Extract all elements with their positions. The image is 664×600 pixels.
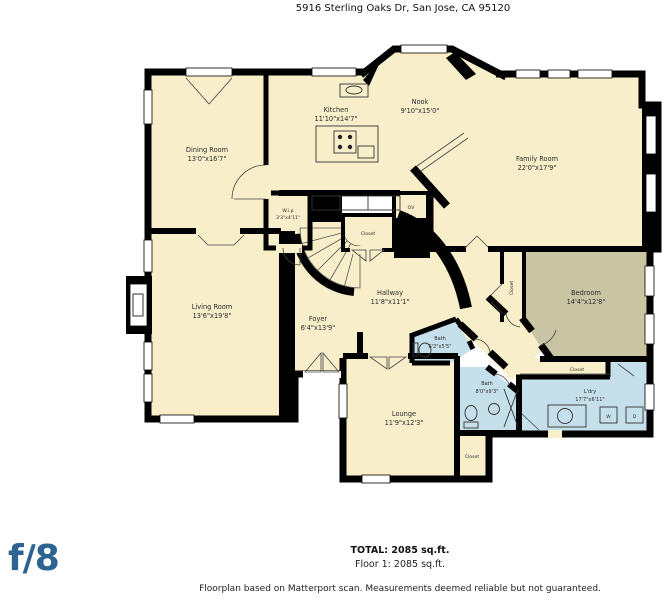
washer-label: W (606, 414, 611, 420)
pantry-dims: 3'3"x4'11" (276, 215, 300, 221)
disclaimer-text: Floorplan based on Matterport scan. Meas… (199, 584, 601, 594)
bath-small-label: Bath (434, 336, 446, 342)
total-area: TOTAL: 2085 sq.ft. (351, 545, 450, 556)
kitchen-dims: 11'10"x14'7" (315, 115, 358, 123)
floor-area: Floor 1: 2085 sq.ft. (355, 559, 445, 570)
lounge-dims: 11'9"x12'3" (385, 419, 424, 427)
bath-dims: 8'0"x9'3" (475, 389, 498, 395)
bath-label: Bath (481, 381, 493, 387)
foyer-label: Foyer (309, 315, 328, 323)
family-room-dims: 22'0"x17'9" (518, 164, 557, 172)
nook-dims: 9'10"x15'0" (401, 107, 440, 115)
dining-room-label: Dining Room (186, 146, 228, 154)
family-room-label: Family Room (516, 155, 558, 163)
laundry-dims: 17'7"x6'11" (575, 397, 604, 403)
foyer-dims: 6'4"x13'9" (301, 324, 336, 332)
closet-stairs-label: Closet (361, 231, 376, 237)
living-room-label: Living Room (192, 303, 232, 311)
bedroom-label: Bedroom (571, 289, 601, 297)
laundry-label: L'dry (584, 389, 596, 395)
dining-room-dims: 13'0"x16'7" (188, 155, 227, 163)
kitchen-label: Kitchen (324, 106, 349, 114)
living-room-dims: 13'6"x19'8" (193, 312, 232, 320)
f8-logo: f/8 (8, 538, 59, 579)
closet-lounge-label: Closet (465, 454, 480, 460)
closet-bedroom-bottom-label: Closet (570, 367, 585, 373)
floorplan-drawing: Kitchen 11'10"x14'7" Nook 9'10"x15'0" Di… (0, 0, 664, 600)
pantry-label: W.i.p (282, 208, 293, 214)
nook-label: Nook (412, 98, 429, 106)
closet-bedroom-side-label: Closet (509, 281, 515, 296)
lounge-label: Lounge (392, 410, 416, 418)
dryer-label: D (633, 414, 637, 420)
hallway-dims: 11'8"x11'1" (371, 298, 410, 306)
kitchen-island (316, 126, 378, 162)
oven-label: OV (408, 205, 416, 211)
hallway-label: Hallway (377, 289, 403, 297)
bath-small-dims: 6'2"x5'5" (428, 344, 451, 350)
bedroom-dims: 14'4"x12'8" (567, 298, 606, 306)
floorplan-page: 5916 Sterling Oaks Dr, San Jose, CA 9512… (0, 0, 664, 600)
